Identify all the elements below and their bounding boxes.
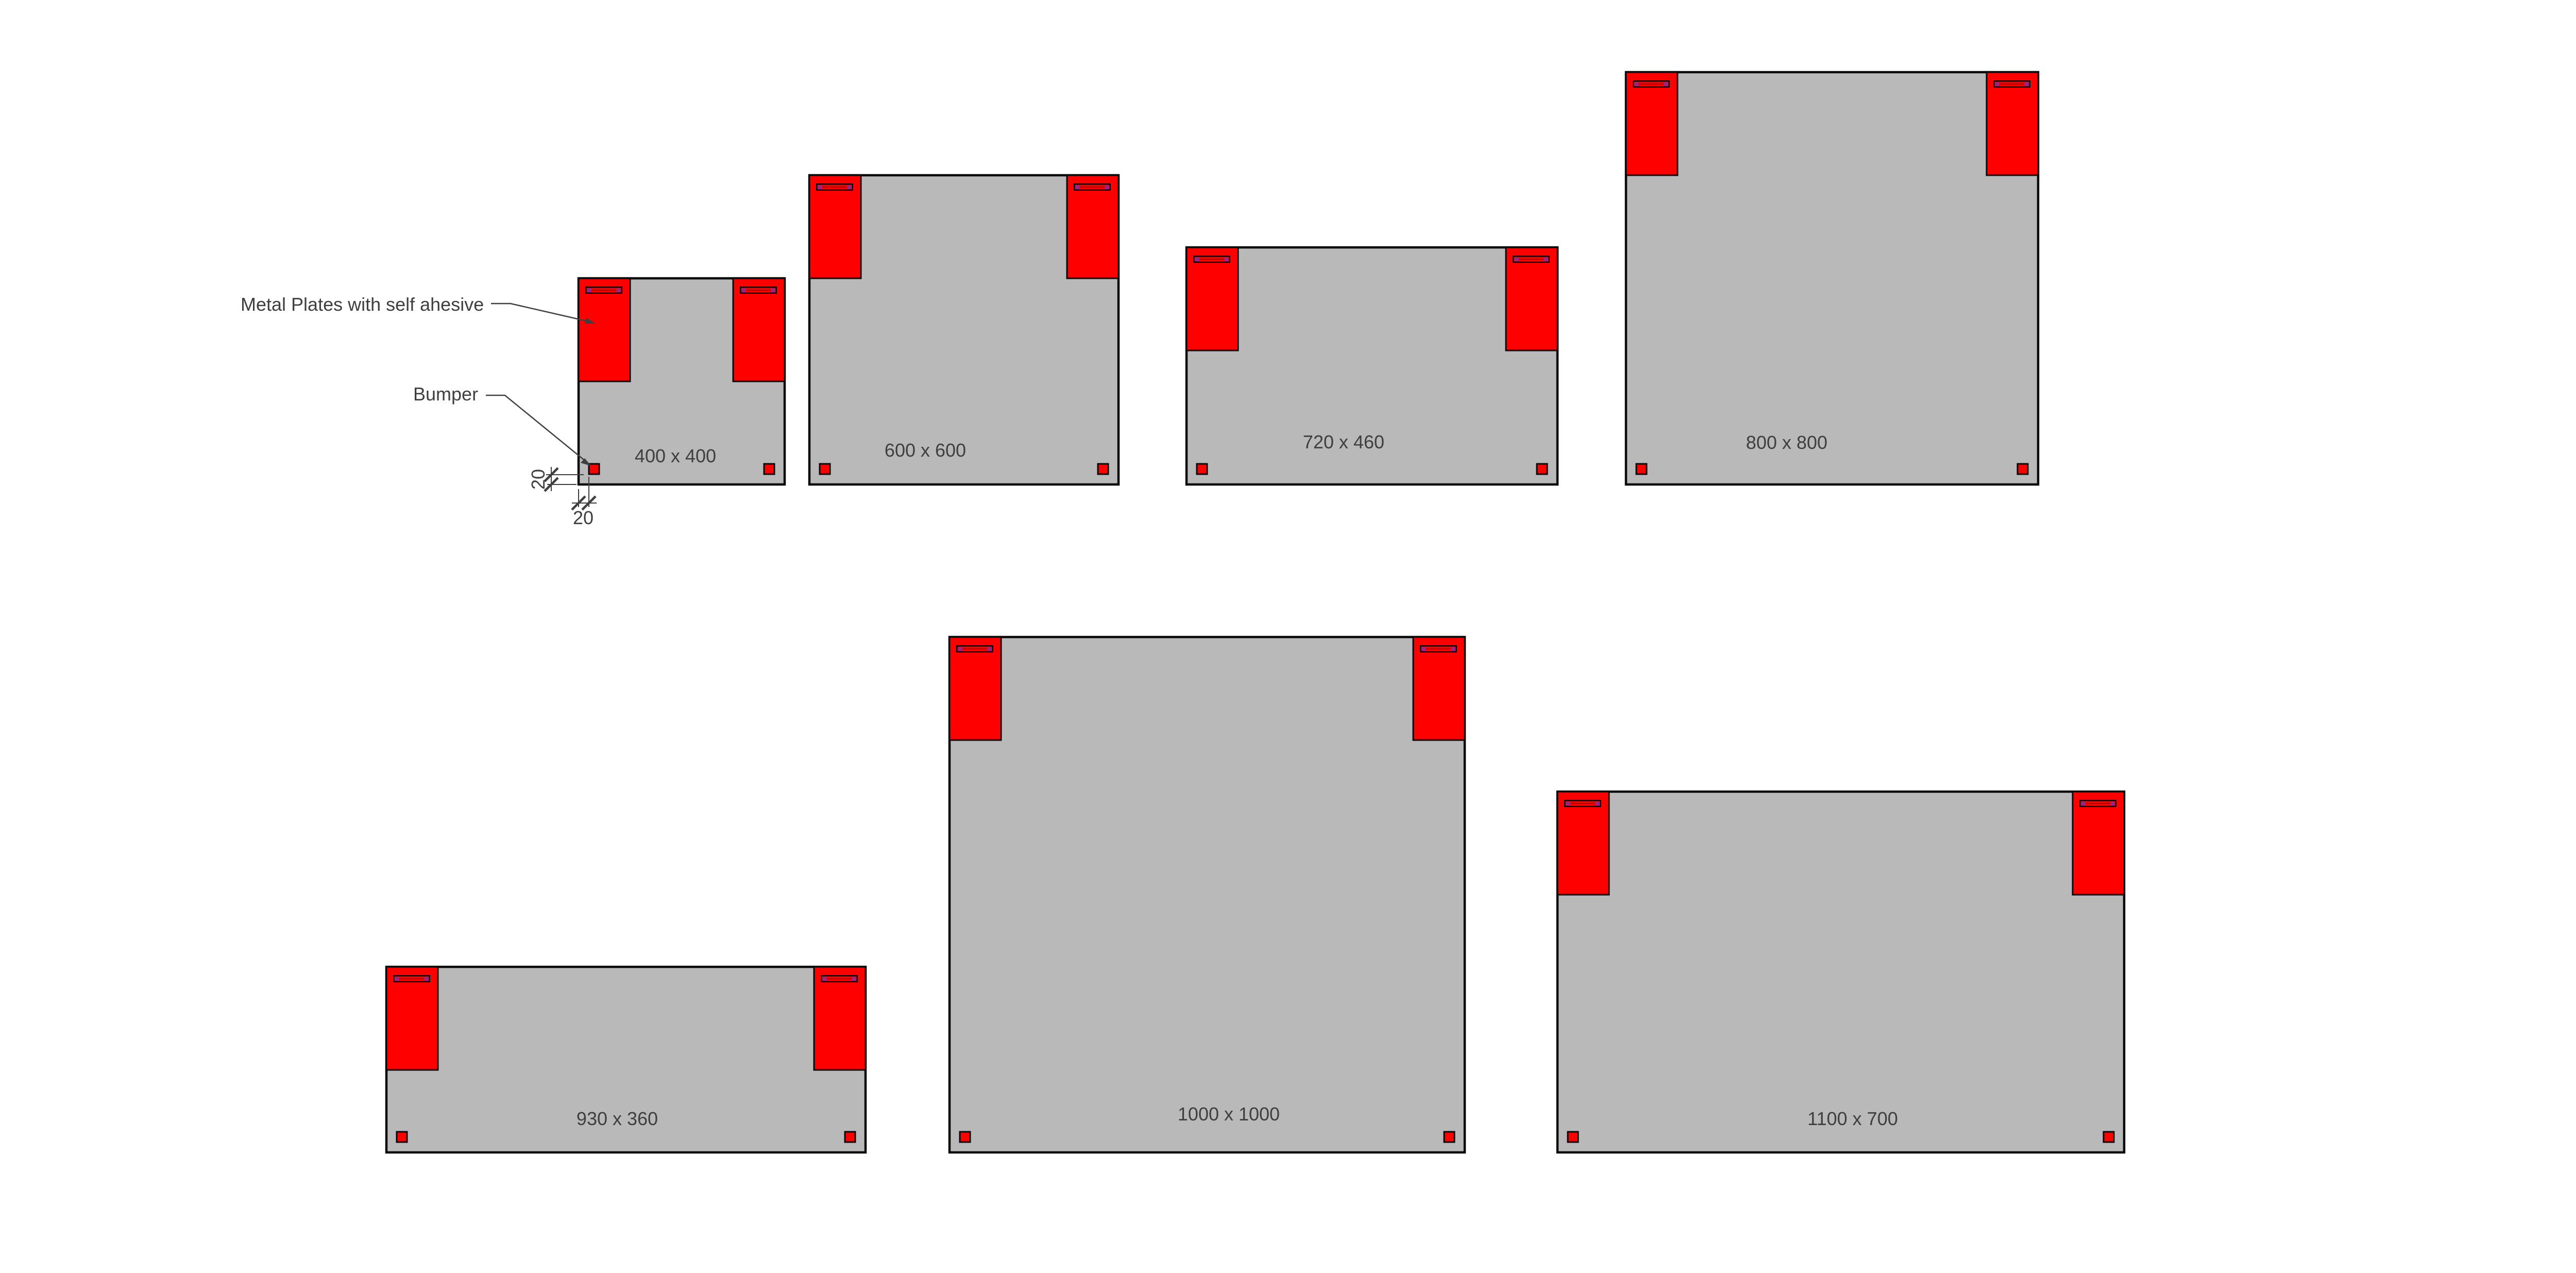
svg-text:Bumper: Bumper xyxy=(413,383,478,405)
svg-text:1100 x 700: 1100 x 700 xyxy=(1807,1108,1897,1129)
svg-text:20: 20 xyxy=(573,507,594,528)
svg-text:400 x 400: 400 x 400 xyxy=(635,445,716,466)
svg-text:1000 x 1000: 1000 x 1000 xyxy=(1178,1103,1280,1125)
svg-text:800 x 800: 800 x 800 xyxy=(1746,432,1827,453)
svg-text:720 x 460: 720 x 460 xyxy=(1303,431,1384,453)
svg-text:20: 20 xyxy=(528,469,549,490)
svg-text:600 x 600: 600 x 600 xyxy=(885,440,966,461)
svg-text:Metal Plates with self ahesive: Metal Plates with self ahesive xyxy=(241,294,484,315)
svg-text:930 x 360: 930 x 360 xyxy=(577,1108,658,1129)
